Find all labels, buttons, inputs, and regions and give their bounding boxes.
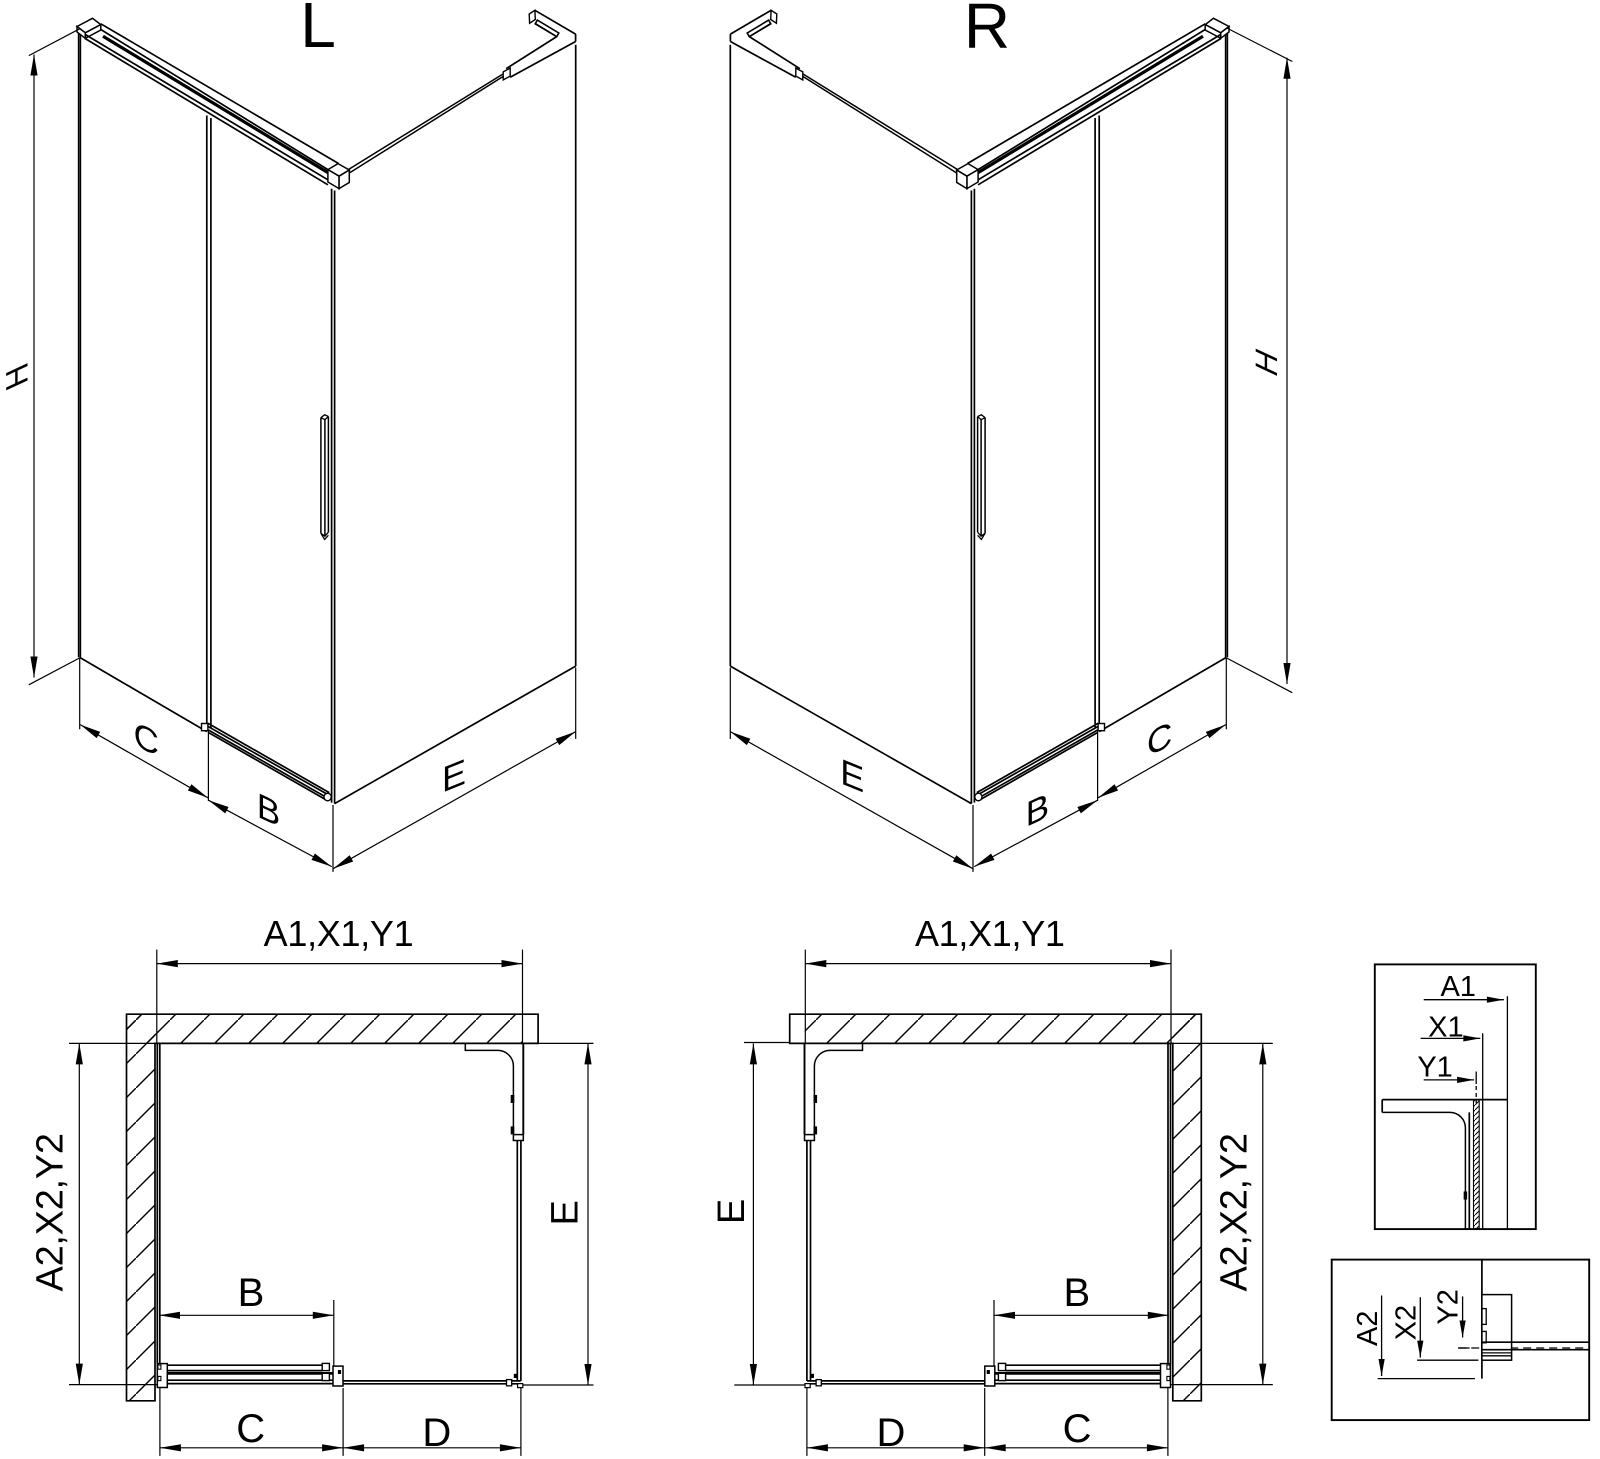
svg-text:B: B (1063, 1271, 1090, 1315)
svg-text:X1: X1 (1428, 1011, 1463, 1043)
svg-text:E: E (544, 1200, 586, 1225)
svg-text:A1: A1 (1440, 971, 1475, 1003)
svg-text:C: C (1063, 1407, 1092, 1451)
svg-text:E: E (711, 1199, 753, 1224)
svg-text:Y1: Y1 (1417, 1051, 1452, 1083)
svg-text:D: D (422, 1411, 451, 1455)
svg-text:L: L (300, 0, 336, 61)
svg-text:A2,X2,Y2: A2,X2,Y2 (30, 1133, 72, 1291)
svg-text:A2: A2 (1352, 1311, 1384, 1346)
svg-text:R: R (964, 0, 1010, 62)
svg-text:X2: X2 (1390, 1305, 1422, 1340)
svg-text:B: B (238, 1271, 265, 1315)
svg-text:Y2: Y2 (1433, 1289, 1465, 1324)
svg-text:A1,X1,Y1: A1,X1,Y1 (264, 913, 414, 954)
svg-text:A2,X2,Y2: A2,X2,Y2 (1214, 1133, 1256, 1291)
svg-text:D: D (877, 1411, 906, 1455)
svg-text:A1,X1,Y1: A1,X1,Y1 (915, 913, 1065, 954)
svg-text:C: C (236, 1407, 265, 1451)
